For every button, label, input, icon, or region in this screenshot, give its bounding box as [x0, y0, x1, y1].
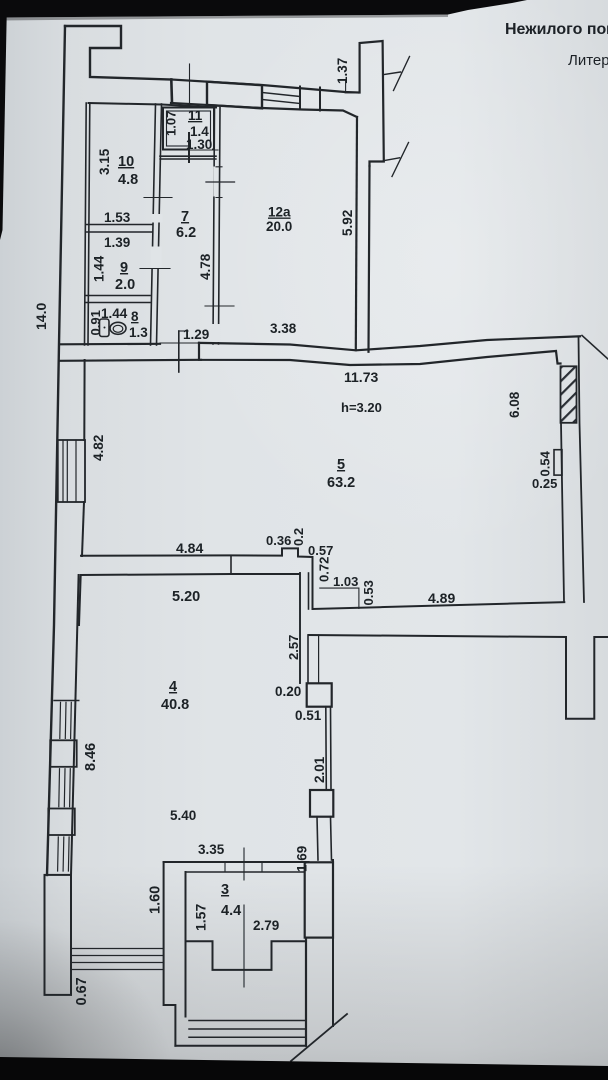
svg-text:1.39: 1.39	[104, 235, 130, 250]
svg-text:1.30: 1.30	[186, 137, 212, 152]
svg-text:1.44: 1.44	[92, 255, 107, 282]
svg-text:6.08: 6.08	[507, 391, 522, 418]
svg-text:1.44: 1.44	[101, 306, 128, 321]
svg-text:2.57: 2.57	[286, 635, 301, 660]
svg-text:6.2: 6.2	[176, 225, 196, 241]
svg-text:40.8: 40.8	[161, 697, 189, 713]
svg-text:0.72: 0.72	[317, 557, 332, 582]
svg-text:2.79: 2.79	[253, 918, 279, 933]
svg-text:1.53: 1.53	[104, 210, 131, 225]
svg-text:0.25: 0.25	[532, 476, 557, 491]
svg-text:0.54: 0.54	[538, 450, 553, 476]
svg-text:4: 4	[169, 679, 177, 695]
svg-text:8: 8	[131, 309, 139, 324]
svg-text:1.07: 1.07	[164, 111, 179, 136]
svg-text:3.38: 3.38	[270, 321, 297, 336]
svg-text:5.40: 5.40	[170, 808, 196, 823]
svg-text:11: 11	[188, 108, 203, 123]
svg-text:8.46: 8.46	[83, 743, 99, 771]
svg-text:1.69: 1.69	[295, 846, 310, 872]
svg-text:4.84: 4.84	[176, 540, 203, 556]
svg-text:4.4: 4.4	[221, 903, 241, 919]
svg-text:Нежилого пом: Нежилого пом	[505, 21, 608, 38]
svg-text:3: 3	[221, 882, 229, 898]
svg-text:5.20: 5.20	[172, 589, 200, 605]
svg-text:0.20: 0.20	[275, 684, 301, 699]
svg-text:0.67: 0.67	[74, 977, 90, 1005]
svg-text:5: 5	[337, 457, 345, 473]
svg-text:4.78: 4.78	[198, 253, 213, 280]
svg-text:Литер: Литер	[568, 52, 608, 69]
svg-text:0.36: 0.36	[266, 533, 291, 548]
svg-text:7: 7	[181, 209, 189, 225]
svg-text:11.73: 11.73	[344, 369, 378, 385]
svg-text:12а: 12а	[268, 205, 291, 220]
svg-text:4.8: 4.8	[118, 172, 138, 188]
svg-text:4.82: 4.82	[91, 435, 106, 461]
svg-text:2.0: 2.0	[115, 277, 135, 293]
svg-text:1.60: 1.60	[148, 886, 164, 914]
svg-text:9: 9	[120, 260, 128, 276]
svg-text:20.0: 20.0	[266, 219, 292, 234]
svg-text:10: 10	[118, 154, 134, 170]
svg-text:0.53: 0.53	[361, 580, 376, 605]
svg-text:3.35: 3.35	[198, 842, 225, 857]
svg-text:63.2: 63.2	[327, 475, 355, 491]
svg-text:1.03: 1.03	[333, 574, 358, 589]
svg-text:1.37: 1.37	[335, 58, 350, 84]
svg-text:3.15: 3.15	[97, 148, 112, 175]
svg-text:14.0: 14.0	[33, 303, 49, 330]
svg-text:0.2: 0.2	[291, 528, 306, 546]
svg-text:0.57: 0.57	[308, 543, 333, 558]
svg-text:h=3.20: h=3.20	[341, 400, 382, 415]
svg-text:1.3: 1.3	[129, 325, 148, 340]
svg-text:2.01: 2.01	[312, 756, 327, 783]
svg-text:0.51: 0.51	[295, 708, 322, 723]
svg-text:4.89: 4.89	[428, 590, 455, 606]
svg-text:5.92: 5.92	[340, 210, 355, 236]
svg-text:1.29: 1.29	[183, 327, 209, 342]
svg-text:1.57: 1.57	[193, 904, 209, 931]
